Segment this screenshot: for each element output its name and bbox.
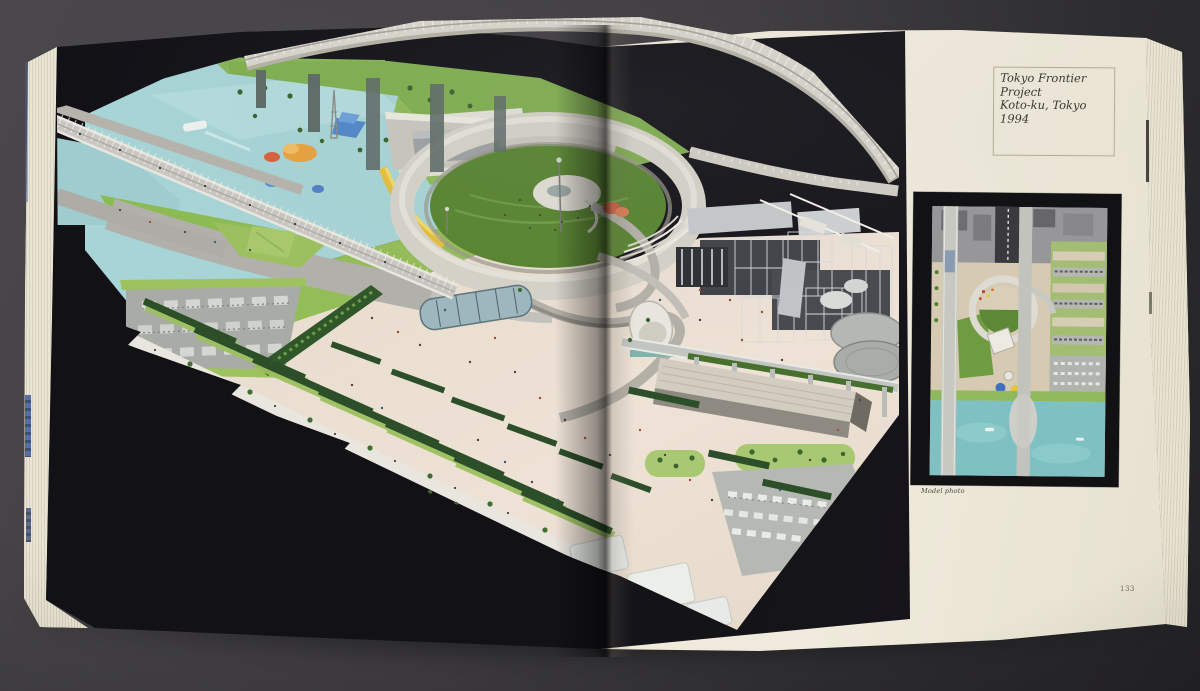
left-fore-edge-blue-pages (25, 395, 31, 457)
plan-photo-graphic (910, 192, 1121, 487)
page-number: 133 (1120, 585, 1135, 593)
fore-edge-dark-gap (1146, 120, 1149, 182)
plan-content (930, 206, 1108, 477)
main-model-photo (46, 14, 914, 652)
project-title: Tokyo Frontier Project (1000, 72, 1114, 100)
left-fore-edge-blue-pages-2 (26, 508, 31, 542)
fore-edge-dark-gap-2 (1149, 292, 1152, 314)
small-plan-model-photo (910, 192, 1121, 487)
project-year: 1994 (1000, 112, 1114, 126)
project-caption-box: Tokyo Frontier Project Koto-ku, Tokyo 19… (993, 67, 1116, 157)
left-fore-edge-blue-tint (25, 62, 28, 202)
photograph-of-open-book: Tokyo Frontier Project Koto-ku, Tokyo 19… (0, 0, 1200, 691)
model-photo-caption: Model photo (921, 487, 965, 495)
